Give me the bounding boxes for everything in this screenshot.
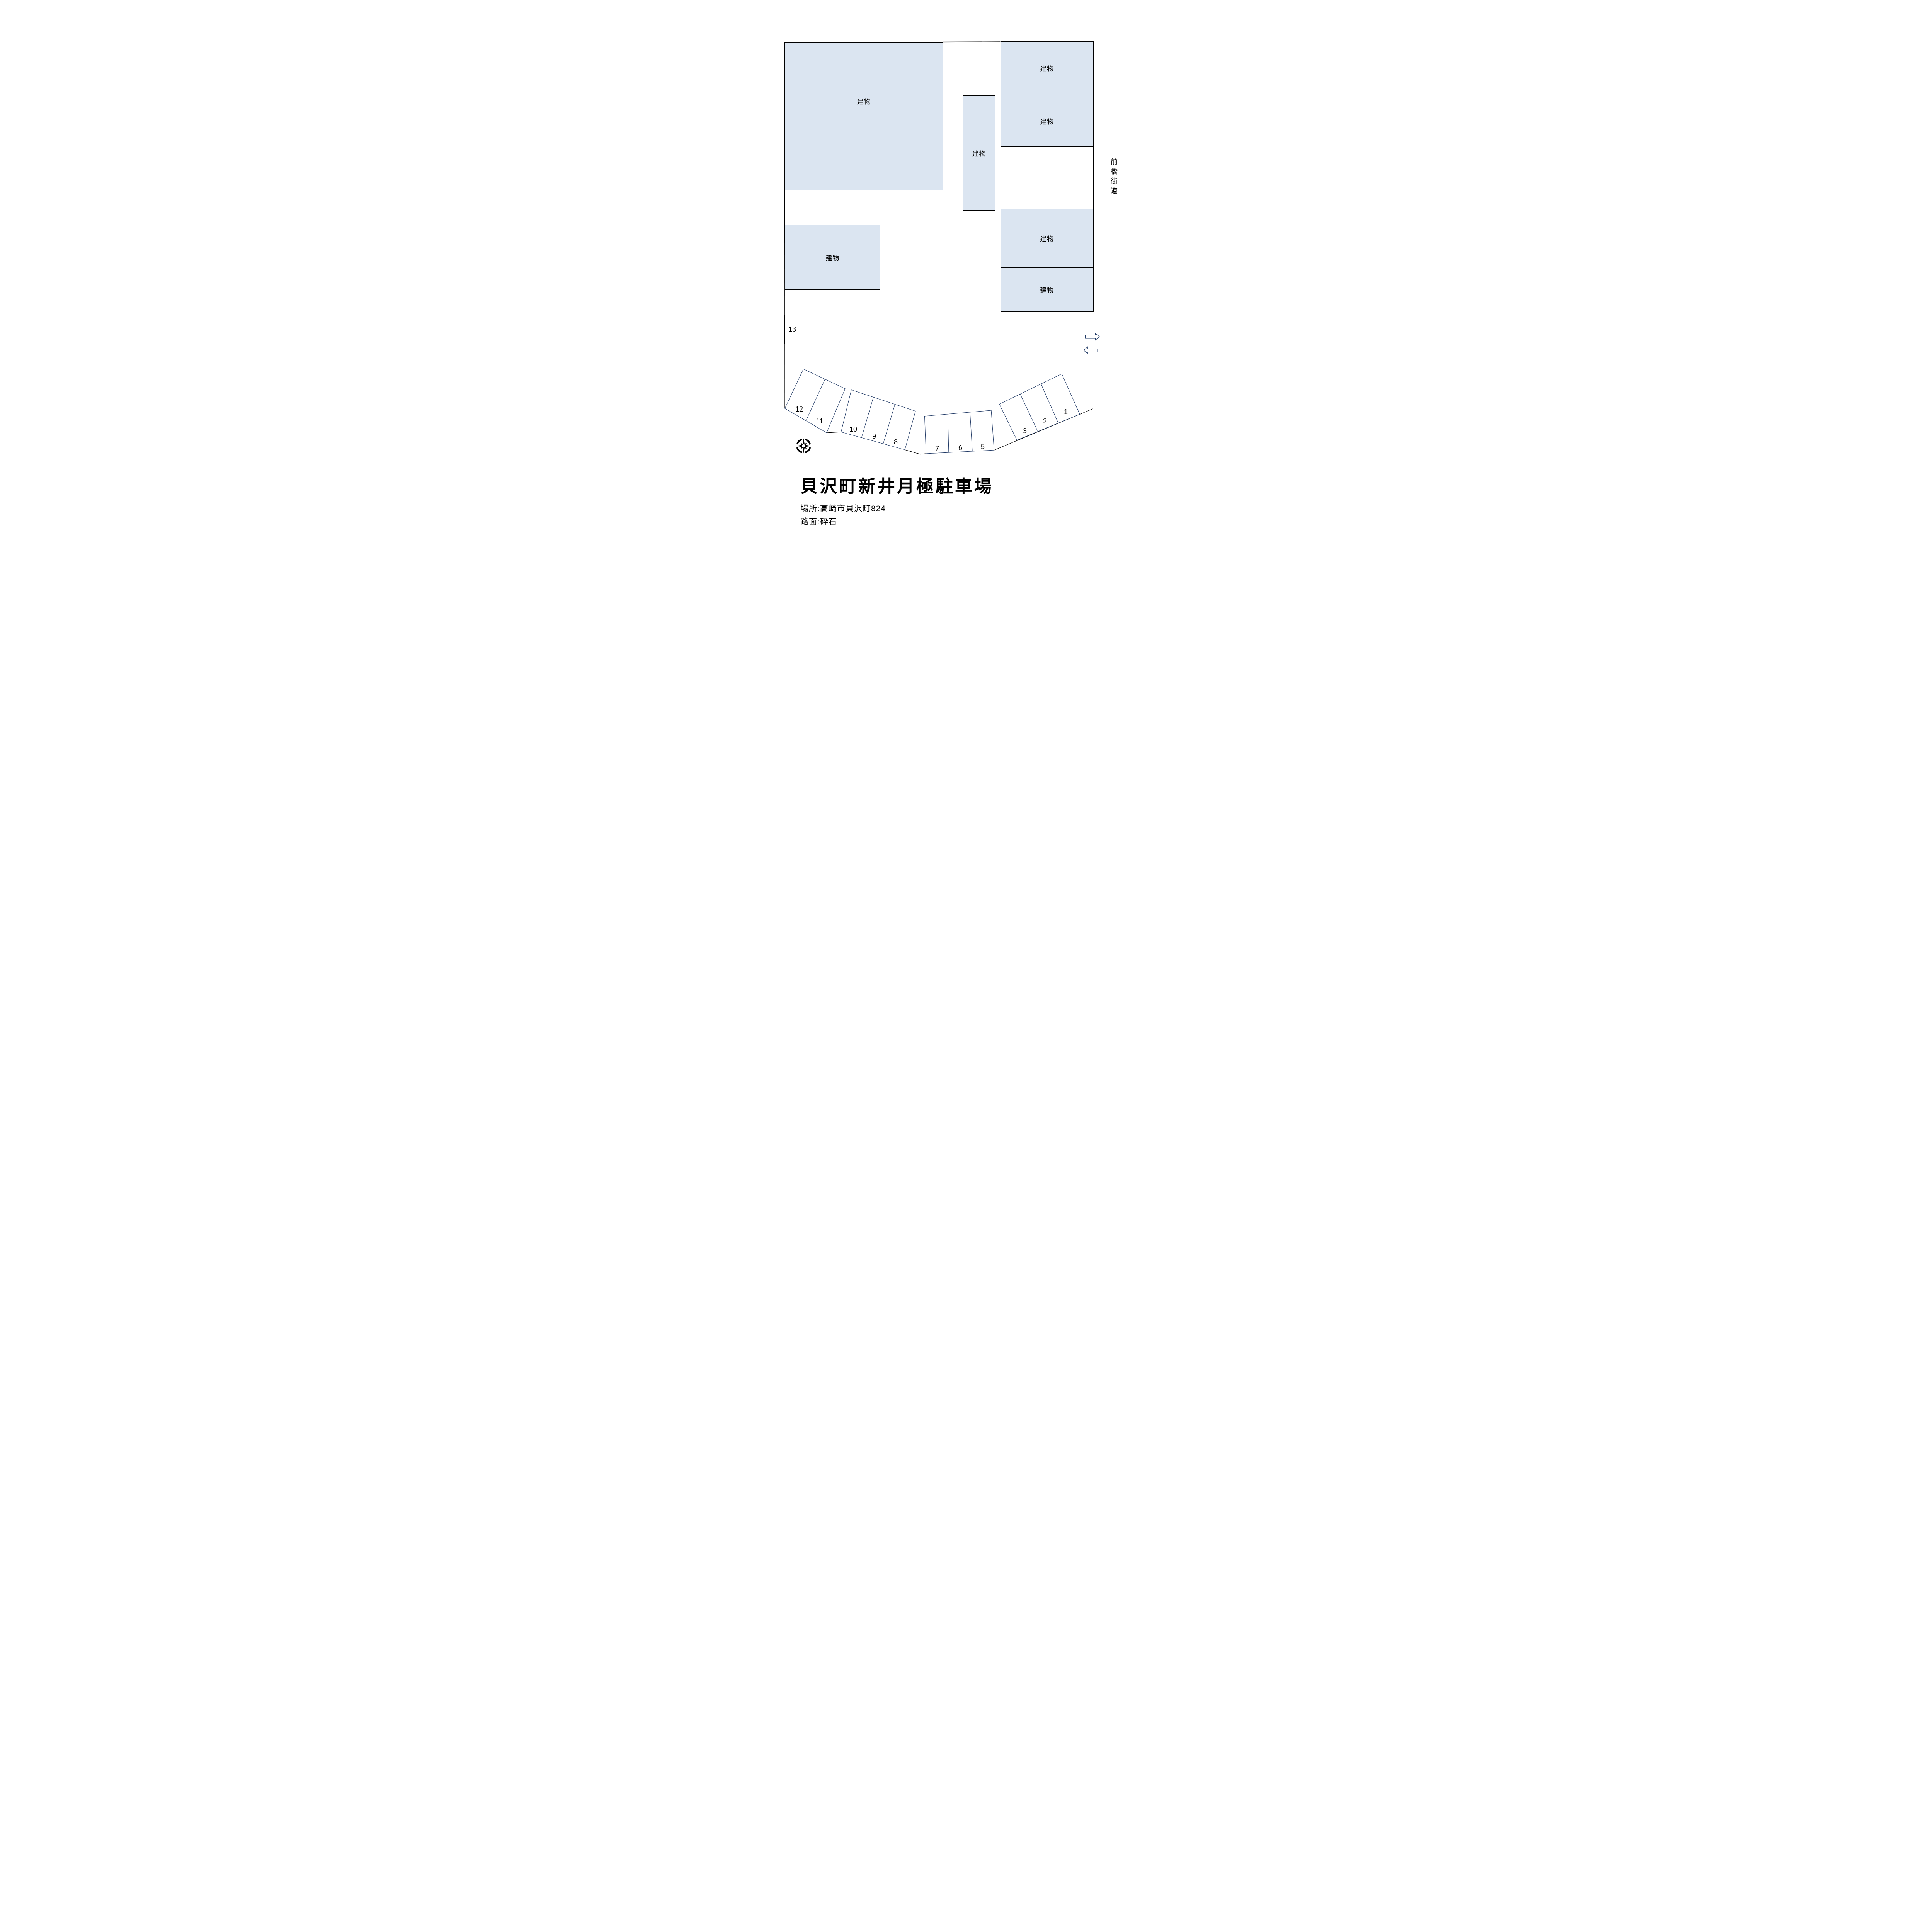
building-label: 建物 xyxy=(1040,116,1054,126)
parking-map-page: 建物 建物 建物 建物 建物 建物 建物 13 12 11 10 9 8 7 6… xyxy=(744,0,1172,607)
building-label: 建物 xyxy=(1040,233,1054,243)
parking-space-13: 13 xyxy=(784,315,832,344)
building-center-vertical: 建物 xyxy=(963,95,995,211)
space-number-1: 1 xyxy=(1064,408,1068,415)
building-east-3: 建物 xyxy=(1001,209,1094,267)
building-northeast-2: 建物 xyxy=(1001,95,1094,147)
arrow-left-icon xyxy=(1084,347,1098,354)
space-number: 13 xyxy=(788,325,796,333)
boundary-south-segment-1 xyxy=(827,432,841,433)
traffic-arrows xyxy=(1084,333,1099,354)
building-east-4: 建物 xyxy=(1001,267,1094,312)
space-number-6: 6 xyxy=(958,444,962,451)
building-label: 建物 xyxy=(972,148,986,158)
building-label: 建物 xyxy=(1040,285,1054,294)
location-line: 場所:高崎市貝沢町824 xyxy=(800,502,886,514)
space-number-10: 10 xyxy=(849,426,857,433)
building-large-northwest: 建物 xyxy=(784,42,943,190)
boundary-west-line xyxy=(785,190,785,408)
space-number-9: 9 xyxy=(872,433,876,440)
compass-rose-icon xyxy=(796,439,811,454)
arrow-right-icon xyxy=(1086,333,1100,340)
building-west-lower: 建物 xyxy=(785,225,880,290)
building-northeast-1: 建物 xyxy=(1001,41,1094,95)
stall-group-10-9-8 xyxy=(841,390,916,450)
space-number-11: 11 xyxy=(816,418,824,425)
page-title: 貝沢町新井月極駐車場 xyxy=(800,472,994,497)
boundary-south-segment-2 xyxy=(905,450,926,454)
space-number-12: 12 xyxy=(795,406,803,413)
road-name-label: 前橋街道 xyxy=(1110,158,1117,197)
space-number-5: 5 xyxy=(981,443,985,450)
space-number-7: 7 xyxy=(935,445,939,452)
building-label: 建物 xyxy=(826,253,840,262)
space-number-2: 2 xyxy=(1043,418,1047,425)
boundary-north-line xyxy=(943,42,1001,42)
stall-group-3-2-1 xyxy=(999,374,1080,440)
parking-stall-outlines xyxy=(785,369,1080,454)
space-number-8: 8 xyxy=(894,439,898,446)
building-label: 建物 xyxy=(857,96,871,106)
space-number-3: 3 xyxy=(1023,427,1027,434)
surface-line: 路面:砕石 xyxy=(800,515,837,527)
building-label: 建物 xyxy=(1040,63,1054,73)
